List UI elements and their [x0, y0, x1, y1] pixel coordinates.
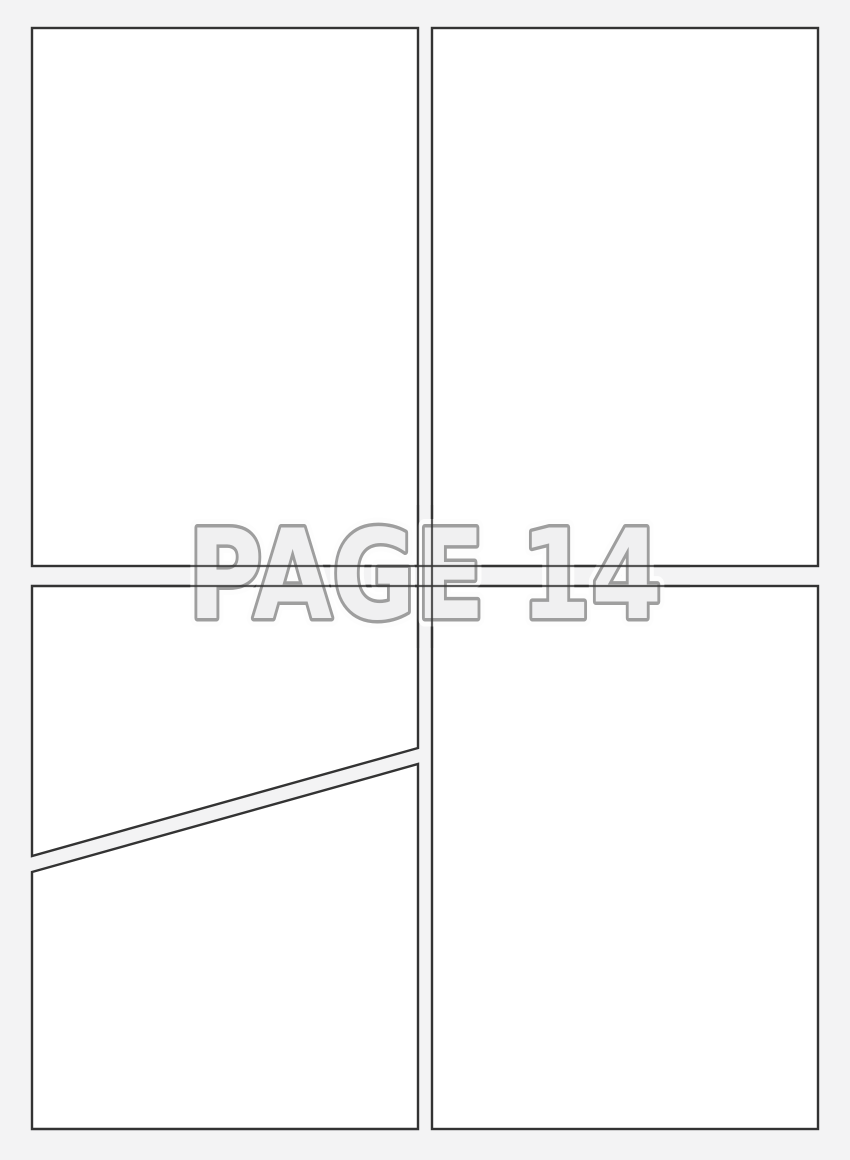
panel-bottom-right — [432, 586, 818, 1129]
page-number-watermark: PAGE 14 — [188, 504, 662, 648]
panel-top-right — [432, 28, 818, 566]
comic-page-template: PAGE 14 PAGE 14 — [0, 0, 850, 1160]
comic-page-canvas: PAGE 14 PAGE 14 — [0, 0, 850, 1160]
panel-top-left — [32, 28, 418, 566]
